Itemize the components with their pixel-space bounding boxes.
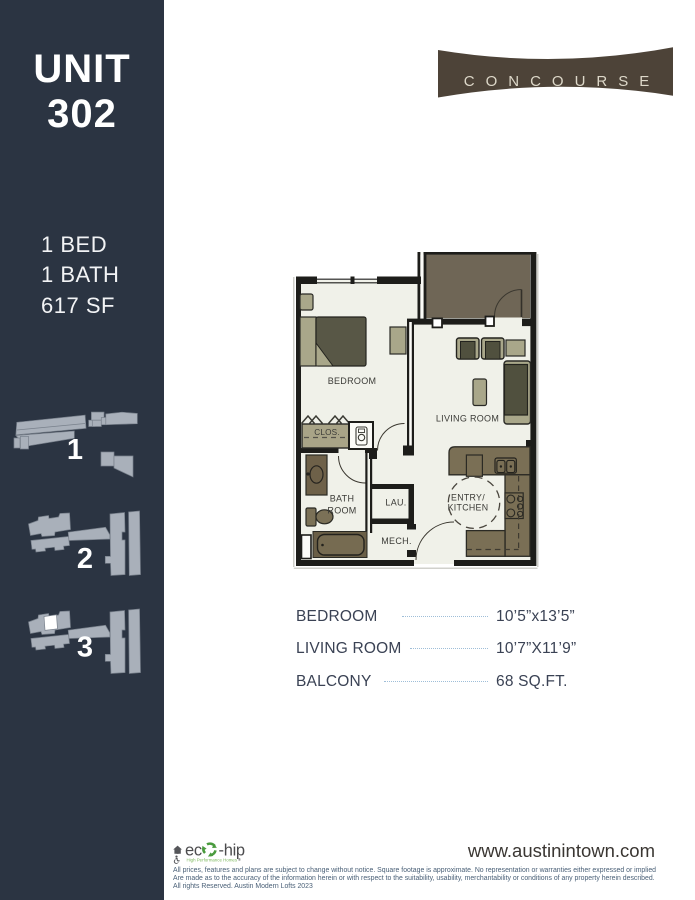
- svg-text:LIVING ROOM: LIVING ROOM: [436, 414, 499, 424]
- svg-text:1: 1: [67, 434, 83, 466]
- svg-text:ENTRY/: ENTRY/: [451, 492, 485, 502]
- svg-text:®: ®: [238, 857, 241, 862]
- svg-text:ROOM: ROOM: [327, 506, 356, 516]
- svg-text:CONCOURSE: CONCOURSE: [464, 73, 661, 90]
- svg-text:2: 2: [77, 543, 93, 575]
- svg-text:3: 3: [77, 632, 93, 664]
- svg-text:LAU.: LAU.: [385, 498, 406, 508]
- svg-text:KITCHEN: KITCHEN: [448, 502, 489, 512]
- svg-text:High Performance Homes: High Performance Homes: [187, 857, 238, 862]
- svg-text:MECH.: MECH.: [381, 536, 412, 546]
- svg-text:CLOS.: CLOS.: [314, 428, 340, 437]
- svg-text:BATH: BATH: [330, 494, 355, 504]
- svg-text:BEDROOM: BEDROOM: [328, 376, 377, 386]
